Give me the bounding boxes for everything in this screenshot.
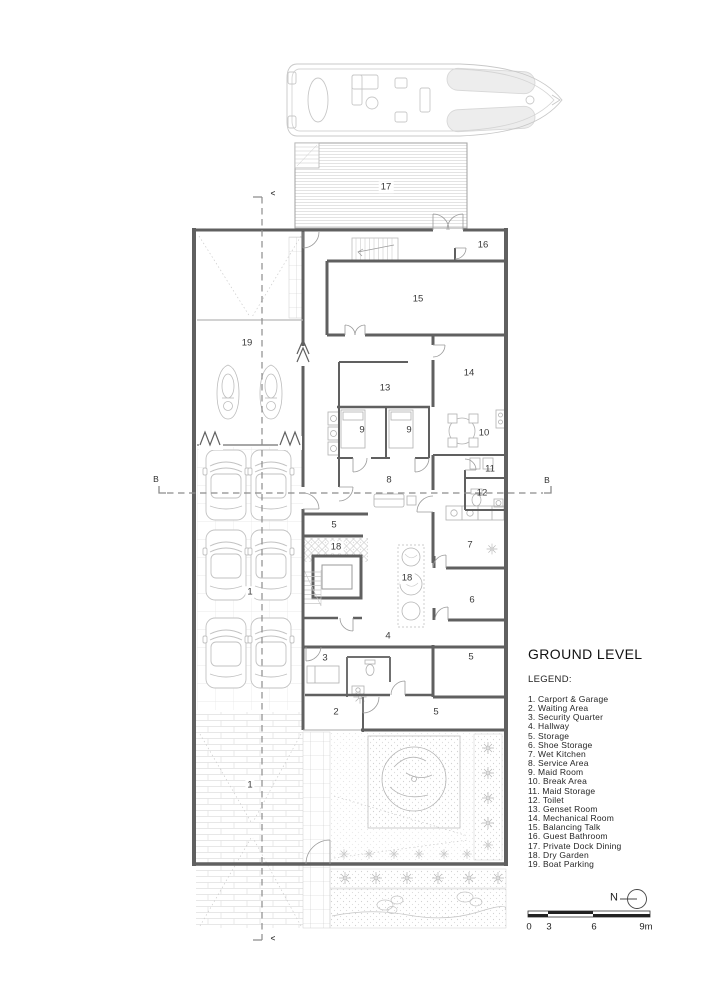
legend-item-19: 19. Boat Parking bbox=[528, 860, 703, 869]
room-label-7-14: 7 bbox=[467, 540, 472, 550]
section-label-b-left: B bbox=[153, 475, 159, 484]
room-label-2-21: 2 bbox=[333, 707, 338, 717]
room-label-6-16: 6 bbox=[469, 595, 474, 605]
room-label-18-15: 18 bbox=[400, 572, 415, 584]
legend-panel: GROUND LEVEL LEGEND: 1. Carport & Garage… bbox=[528, 646, 703, 869]
legend-list: 1. Carport & Garage2. Waiting Area3. Sec… bbox=[528, 695, 703, 869]
scale-tick-9m: 9m bbox=[639, 922, 652, 932]
scale-tick-6: 6 bbox=[591, 922, 596, 932]
scale-tick-3: 3 bbox=[546, 922, 551, 932]
room-label-9-6: 9 bbox=[359, 425, 364, 435]
room-label-5-22: 5 bbox=[433, 707, 438, 717]
north-arrow bbox=[620, 890, 647, 909]
room-label-8-10: 8 bbox=[386, 475, 391, 485]
section-arrow-top: < bbox=[271, 190, 276, 198]
section-label-b-right: B bbox=[544, 476, 550, 485]
room-label-15-2: 15 bbox=[413, 294, 424, 304]
room-label-4-18: 4 bbox=[385, 631, 390, 641]
page-title: GROUND LEVEL bbox=[528, 646, 703, 662]
room-label-9-7: 9 bbox=[406, 425, 411, 435]
room-label-1-17: 1 bbox=[245, 586, 254, 598]
room-label-3-19: 3 bbox=[322, 653, 327, 663]
room-label-13-4: 13 bbox=[380, 383, 391, 393]
room-label-14-5: 14 bbox=[464, 368, 475, 378]
room-label-5-20: 5 bbox=[468, 652, 473, 662]
room-label-11-9: 11 bbox=[485, 464, 495, 474]
north-label: N bbox=[610, 893, 618, 904]
section-arrow-bottom: < bbox=[271, 935, 276, 943]
room-label-1-23: 1 bbox=[245, 779, 254, 791]
floor-plan-sheet: 17161519131499101181251871861435251BB<<0… bbox=[0, 0, 707, 1000]
scale-tick-0: 0 bbox=[526, 922, 531, 932]
room-label-5-12: 5 bbox=[331, 520, 336, 530]
room-label-12-11: 12 bbox=[477, 488, 488, 498]
room-label-17-0: 17 bbox=[379, 181, 394, 193]
yacht-drawing bbox=[287, 64, 562, 136]
room-label-19-3: 19 bbox=[242, 338, 253, 348]
break-symbols bbox=[199, 340, 309, 450]
room-label-16-1: 16 bbox=[478, 240, 489, 250]
scale-bar bbox=[528, 911, 650, 917]
room-label-18-13: 18 bbox=[329, 541, 344, 553]
room-label-10-8: 10 bbox=[479, 428, 490, 438]
legend-label: LEGEND: bbox=[528, 674, 703, 685]
